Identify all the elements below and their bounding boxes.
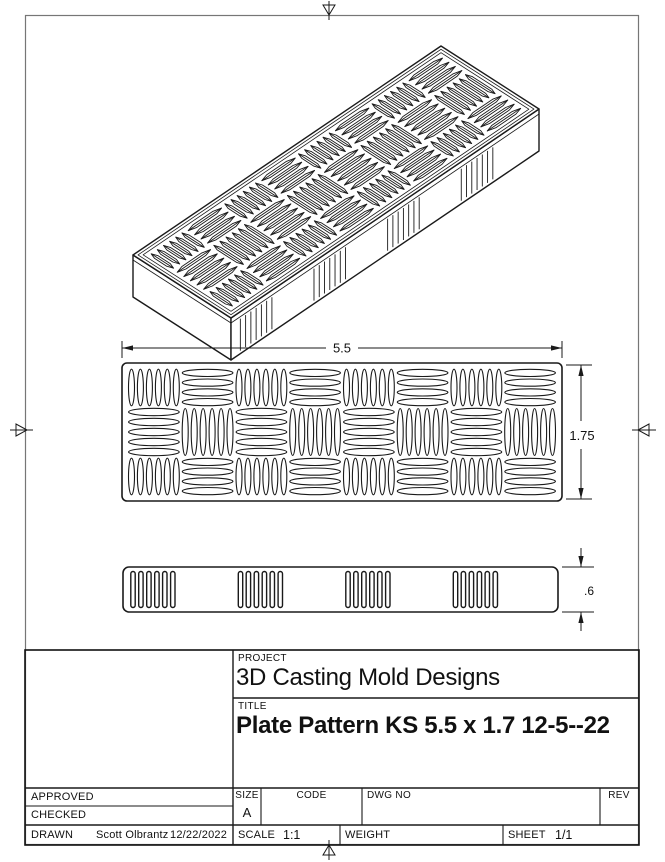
- title-value: Plate Pattern KS 5.5 x 1.7 12-5--22: [236, 714, 610, 738]
- dim-thickness-text: .6: [584, 584, 594, 598]
- project-value: 3D Casting Mold Designs: [236, 666, 500, 690]
- weight-label: WEIGHT: [345, 830, 390, 841]
- size-value: A: [233, 806, 261, 819]
- drawing-sheet: 5.51.75.6 PROJECT 3D Casting Mold Design…: [0, 0, 665, 862]
- checked-label: CHECKED: [31, 810, 86, 821]
- dwg-no-label: DWG NO: [367, 791, 411, 801]
- sheet-value: 1/1: [555, 829, 572, 842]
- centering-mark-bottom-icon: [323, 840, 335, 860]
- centering-mark-top-icon: [323, 1, 335, 20]
- dim-thickness: .6: [562, 548, 594, 631]
- dim-width: 5.5: [122, 341, 562, 359]
- drawn-label: DRAWN: [31, 830, 73, 841]
- drawn-by: Scott Olbrantz: [96, 830, 169, 841]
- project-label: PROJECT: [238, 654, 287, 664]
- side-view: [123, 567, 558, 612]
- rev-label: REV: [600, 791, 638, 801]
- drawn-date: 12/22/2022: [170, 830, 227, 841]
- code-label: CODE: [261, 791, 362, 801]
- size-label: SIZE: [233, 791, 261, 801]
- centering-mark-right-icon: [632, 424, 656, 436]
- dim-height: 1.75: [566, 365, 595, 499]
- scale-value: 1:1: [283, 829, 300, 842]
- iso-view: [133, 46, 539, 360]
- dim-width-text: 5.5: [333, 341, 351, 356]
- title-label: TITLE: [238, 702, 267, 712]
- sheet-label: SHEET: [508, 830, 546, 841]
- scale-label: SCALE: [238, 830, 275, 841]
- centering-mark-left-icon: [10, 424, 33, 436]
- plan-view: [122, 363, 562, 501]
- dim-height-text: 1.75: [569, 428, 594, 443]
- approved-label: APPROVED: [31, 792, 94, 803]
